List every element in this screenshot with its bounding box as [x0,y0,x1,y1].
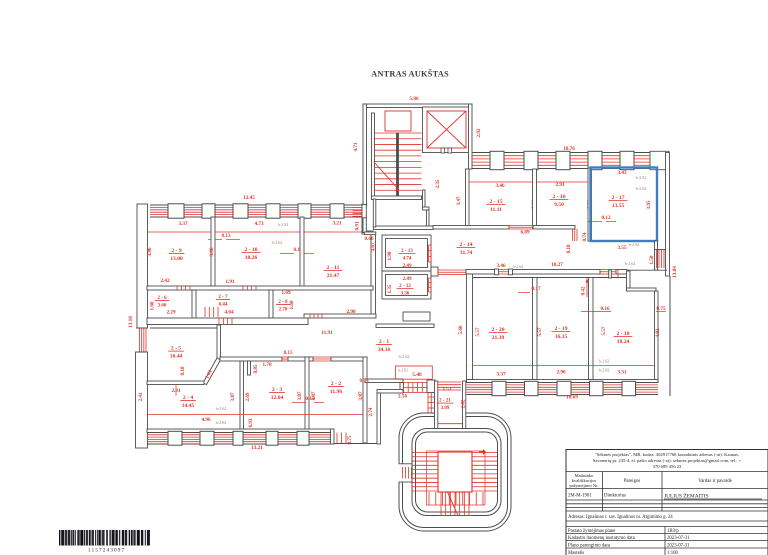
svg-text:10.76: 10.76 [563,146,575,152]
svg-text:11.91: 11.91 [321,330,333,336]
svg-text:4.82: 4.82 [655,328,661,337]
svg-text:34.16: 34.16 [378,347,391,353]
svg-text:h-2.82: h-2.82 [599,368,610,373]
svg-text:3.46: 3.46 [495,183,504,189]
svg-text:0.18: 0.18 [180,366,186,375]
svg-text:14.45: 14.45 [182,403,195,409]
svg-text:Adresas: Ignalinos r. sav. Ign: Adresas: Ignalinos r. sav. Ignalinos m. … [568,515,673,520]
svg-text:31.74: 31.74 [460,250,473,256]
svg-text:3.86: 3.86 [209,247,215,256]
svg-text:h-2.62: h-2.62 [272,240,283,245]
svg-text:0.42: 0.42 [581,286,587,295]
svg-text:2.91: 2.91 [555,182,564,188]
svg-text:1.35: 1.35 [387,284,393,293]
svg-text:1.91: 1.91 [225,279,234,285]
svg-text:0.10: 0.10 [566,244,572,253]
svg-text:2 - 2: 2 - 2 [331,381,341,387]
svg-text:2 - 14: 2 - 14 [459,242,472,248]
svg-text:h-2.62: h-2.62 [216,406,227,411]
svg-text:1B3/p: 1B3/p [667,529,679,534]
svg-text:4.67: 4.67 [371,242,377,251]
svg-text:9.50: 9.50 [554,202,564,208]
svg-text:2 - 11: 2 - 11 [327,265,340,271]
svg-text:2.90: 2.90 [556,370,565,376]
svg-text:18.24: 18.24 [617,339,630,345]
svg-text:10.27: 10.27 [551,262,563,268]
svg-text:3.46: 3.46 [496,263,505,269]
svg-text:6.93: 6.93 [248,418,254,427]
svg-text:2023-07-31: 2023-07-31 [667,544,690,549]
svg-text:h-2.62: h-2.62 [399,354,410,359]
svg-text:16.15: 16.15 [555,334,568,340]
svg-text:2 - 4: 2 - 4 [183,395,193,401]
svg-text:5.48: 5.48 [412,372,422,378]
svg-text:h-2.62: h-2.62 [599,359,610,364]
svg-text:0.12: 0.12 [601,215,610,221]
svg-text:2 - 5: 2 - 5 [171,346,181,352]
svg-text:5.66: 5.66 [458,325,464,334]
svg-text:Mastelis: Mastelis [568,551,584,555]
svg-text:h-2.62: h-2.62 [513,264,524,269]
svg-text:0.74: 0.74 [359,378,368,384]
svg-text:2 - 10: 2 - 10 [244,247,257,253]
svg-text:h-2.62: h-2.62 [636,186,647,191]
svg-text:2.70: 2.70 [279,307,288,312]
svg-text:0.91: 0.91 [355,221,361,230]
svg-text:6.44: 6.44 [219,302,228,307]
svg-text:13.21: 13.21 [251,445,263,451]
svg-text:h-2.82: h-2.82 [278,222,289,227]
svg-text:2.49: 2.49 [402,276,411,282]
svg-text:Pareigos: Pareigos [624,479,641,484]
svg-text:3.86: 3.86 [147,247,153,256]
svg-text:3.09: 3.09 [441,406,450,411]
svg-text:2 - 19: 2 - 19 [554,326,567,332]
svg-text:4.96: 4.96 [201,417,210,423]
svg-text:10.44: 10.44 [170,354,183,360]
svg-text:h-2.82: h-2.82 [398,369,408,373]
svg-text:1.60: 1.60 [289,300,295,309]
svg-text:3.47: 3.47 [456,196,462,205]
svg-text:1.90: 1.90 [387,251,393,260]
svg-text:3.87: 3.87 [297,391,303,400]
svg-text:3.87: 3.87 [230,392,236,401]
svg-text:11.96: 11.96 [330,389,342,395]
svg-text:h-2.82: h-2.82 [629,242,640,247]
svg-text:2 - 9: 2 - 9 [171,248,181,254]
svg-text:21.47: 21.47 [327,273,340,279]
svg-text:13.55: 13.55 [612,203,625,209]
svg-text:2.49: 2.49 [402,263,411,269]
svg-text:3.55: 3.55 [617,245,626,251]
svg-text:1.50: 1.50 [649,255,655,264]
svg-text:2.90: 2.90 [346,309,355,315]
svg-text:5.57: 5.57 [601,326,607,335]
svg-text:2.56: 2.56 [398,394,407,400]
svg-text:0.13: 0.13 [305,396,314,402]
svg-text:2.35: 2.35 [435,179,441,188]
svg-text:11.11: 11.11 [490,207,502,213]
svg-text:18.26: 18.26 [245,255,258,261]
svg-text:4.71: 4.71 [353,142,359,151]
svg-text:3.66: 3.66 [158,303,167,308]
svg-text:0.75: 0.75 [656,306,665,312]
svg-text:h-2.82: h-2.82 [216,420,227,425]
svg-text:Vardas ir pavardė: Vardas ir pavardė [698,479,732,484]
svg-text:2.02: 2.02 [461,399,467,408]
svg-text:Plano parengimo data: Plano parengimo data [568,544,611,549]
svg-text:0.17: 0.17 [531,286,540,292]
svg-text:12.04: 12.04 [271,395,284,401]
svg-text:2023-07-31: 2023-07-31 [667,536,690,541]
svg-text:4.04: 4.04 [224,310,233,316]
svg-text:2 - 3: 2 - 3 [272,387,282,393]
svg-text:Kadastro duomenų nustatymo dat: Kadastro duomenų nustatymo data [568,536,636,541]
svg-text:2 - 16: 2 - 16 [552,194,565,200]
svg-text:13.04: 13.04 [672,266,678,278]
svg-text:ANTRAS AUKŠTAS: ANTRAS AUKŠTAS [371,69,449,79]
svg-text:3.37: 3.37 [496,372,505,378]
svg-text:Pastato žymėjimas plane: Pastato žymėjimas plane [568,529,615,534]
svg-text:2M-M-1901: 2M-M-1901 [568,494,592,499]
svg-text:3.21: 3.21 [332,221,341,227]
svg-text:18.69: 18.69 [566,395,578,401]
svg-text:3.95: 3.95 [646,200,652,209]
svg-text:2.41: 2.41 [138,392,144,401]
svg-text:0.85: 0.85 [253,364,259,373]
svg-text:3.31: 3.31 [617,370,626,376]
svg-text:4.74: 4.74 [403,256,412,261]
svg-text:3.37: 3.37 [178,221,187,227]
svg-text:Direktorius: Direktorius [604,494,626,499]
svg-text:2.42: 2.42 [160,278,169,284]
svg-text:0.13: 0.13 [221,233,230,239]
svg-text:1:100: 1:100 [667,551,679,555]
svg-text:2.69: 2.69 [245,392,251,401]
svg-text:pažymėjimo Nr.: pažymėjimo Nr. [570,483,599,488]
svg-text:JULIUS ŽEMAITIS: JULIUS ŽEMAITIS [664,492,708,500]
svg-text:13.00: 13.00 [170,256,183,262]
svg-text:13.10: 13.10 [128,316,134,328]
svg-text:h-2.62: h-2.62 [625,261,636,266]
svg-text:1.60: 1.60 [150,301,156,310]
svg-text:5.86: 5.86 [409,96,418,102]
svg-text:2.29: 2.29 [166,310,175,316]
svg-text:2 - 17: 2 - 17 [611,195,624,201]
svg-text:6.89: 6.89 [520,230,529,236]
svg-text:3.43: 3.43 [617,170,626,176]
svg-text:5.57: 5.57 [537,327,543,336]
svg-text:3.36: 3.36 [401,291,410,296]
svg-text:2 - 15: 2 - 15 [489,199,502,205]
svg-text:2.74: 2.74 [368,407,374,416]
svg-text:2 - 1: 2 - 1 [379,339,389,345]
svg-text:12.45: 12.45 [243,195,255,201]
svg-text:8.15: 8.15 [283,350,292,356]
svg-text:1.69: 1.69 [281,290,290,296]
svg-text:h-2.82: h-2.82 [636,175,647,180]
svg-text:2 - 20: 2 - 20 [491,327,504,333]
svg-text:0.60: 0.60 [364,236,373,242]
svg-text:5.57: 5.57 [475,327,481,336]
svg-text:4.73: 4.73 [254,221,263,227]
svg-text:2.92: 2.92 [476,128,482,137]
svg-text:21.39: 21.39 [492,335,505,341]
svg-text:0.74: 0.74 [582,232,588,241]
svg-text:1.53: 1.53 [442,387,451,393]
svg-text:2 - 18: 2 - 18 [616,331,629,337]
svg-text:370 689 456 23: 370 689 456 23 [653,464,682,469]
svg-text:1 1 5 7 2 4 3 0 9 7: 1 1 5 7 2 4 3 0 9 7 [88,549,125,554]
svg-text:1.78: 1.78 [262,362,271,368]
